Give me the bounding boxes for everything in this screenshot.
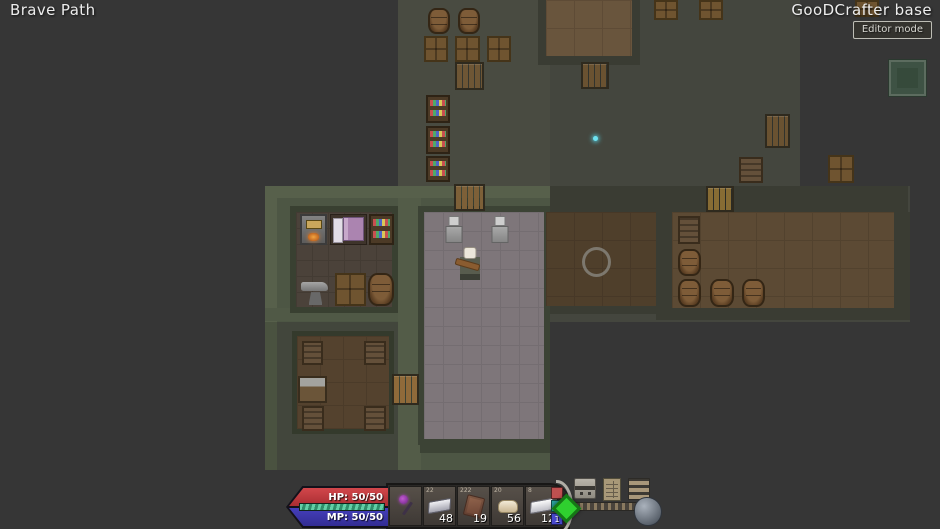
supply-shelf[interactable] bbox=[364, 341, 386, 365]
wooden-door[interactable] bbox=[706, 186, 734, 212]
wall bbox=[656, 212, 672, 312]
chest-icon[interactable] bbox=[574, 478, 596, 499]
armor-stand[interactable] bbox=[443, 216, 465, 247]
green-pool[interactable] bbox=[889, 60, 926, 96]
wall bbox=[265, 186, 277, 322]
barrel[interactable] bbox=[742, 279, 765, 307]
barrel[interactable] bbox=[458, 8, 480, 34]
wall bbox=[656, 306, 910, 320]
wooden-door[interactable] bbox=[581, 62, 609, 89]
armor-stand[interactable] bbox=[489, 216, 511, 247]
crate[interactable] bbox=[424, 36, 448, 62]
wooden-door[interactable] bbox=[455, 62, 484, 90]
hud-menu-icons bbox=[574, 478, 650, 501]
potion-shelf[interactable] bbox=[426, 95, 450, 123]
wooden-door[interactable] bbox=[392, 374, 419, 405]
potion-shelf[interactable] bbox=[369, 214, 394, 245]
slot-count: 48 bbox=[439, 512, 453, 525]
hotbar-slot-1[interactable] bbox=[389, 486, 422, 526]
ledger-icon[interactable] bbox=[603, 478, 621, 501]
barrel[interactable] bbox=[368, 273, 394, 306]
slot-tag: 22 bbox=[426, 487, 434, 494]
supply-shelf[interactable] bbox=[364, 406, 386, 431]
crate[interactable] bbox=[335, 273, 366, 306]
potion-shelf[interactable] bbox=[426, 156, 450, 182]
hotbar-slot-4[interactable]: 2056 bbox=[491, 486, 524, 526]
slot-tag: 20 bbox=[494, 487, 502, 494]
floor bbox=[424, 212, 544, 439]
base-name-label: GooDCrafter base bbox=[791, 1, 932, 19]
crate[interactable] bbox=[455, 36, 480, 62]
sparkle bbox=[593, 136, 598, 141]
slot-tag: 222 bbox=[460, 487, 471, 494]
slot-count: 56 bbox=[507, 512, 521, 525]
wall bbox=[894, 212, 910, 312]
wall bbox=[632, 0, 640, 64]
stone-ring[interactable] bbox=[582, 247, 611, 277]
wall bbox=[265, 186, 550, 198]
editor-mode-button[interactable]: Editor mode bbox=[853, 21, 932, 39]
xp-bar bbox=[299, 503, 385, 511]
supply-shelf[interactable] bbox=[302, 406, 324, 431]
furnace[interactable] bbox=[300, 214, 327, 245]
bed[interactable] bbox=[330, 214, 367, 245]
hotbar: 2248222192056812 bbox=[386, 483, 570, 529]
supply-shelf[interactable] bbox=[302, 341, 323, 365]
table[interactable] bbox=[298, 376, 327, 403]
anvil[interactable] bbox=[301, 277, 330, 306]
supply-shelf[interactable] bbox=[678, 216, 700, 244]
game-viewport: Brave Path GooDCrafter base Editor mode … bbox=[0, 0, 940, 529]
floor bbox=[546, 0, 632, 56]
crate[interactable] bbox=[699, 0, 723, 20]
crate[interactable] bbox=[654, 0, 678, 20]
barrel[interactable] bbox=[678, 249, 701, 276]
wall bbox=[538, 0, 546, 64]
barrel[interactable] bbox=[428, 8, 450, 34]
barrel[interactable] bbox=[678, 279, 701, 307]
wall bbox=[265, 322, 277, 470]
crate[interactable] bbox=[487, 36, 511, 62]
slot-count: 19 bbox=[473, 512, 487, 525]
hotbar-slot-2[interactable]: 2248 bbox=[423, 486, 456, 526]
slot-tag: 8 bbox=[528, 487, 532, 494]
purple-mace-icon bbox=[396, 494, 416, 518]
hotbar-slot-3[interactable]: 22219 bbox=[457, 486, 490, 526]
player-character[interactable] bbox=[460, 247, 480, 280]
potion-shelf[interactable] bbox=[426, 126, 450, 154]
hp-text: HP: 50/50 bbox=[328, 492, 383, 503]
boulder-icon[interactable] bbox=[634, 497, 662, 526]
clay-icon bbox=[498, 500, 518, 513]
supply-shelf[interactable] bbox=[739, 157, 763, 183]
wooden-door[interactable] bbox=[765, 114, 790, 148]
hp-mp-banner: HP: 50/50 MP: 50/50 bbox=[286, 486, 388, 528]
location-label: Brave Path bbox=[10, 1, 95, 19]
barrel[interactable] bbox=[710, 279, 734, 307]
crate[interactable] bbox=[828, 155, 854, 183]
wooden-door[interactable] bbox=[454, 184, 485, 211]
mp-text: MP: 50/50 bbox=[327, 512, 383, 523]
floor bbox=[672, 212, 894, 308]
